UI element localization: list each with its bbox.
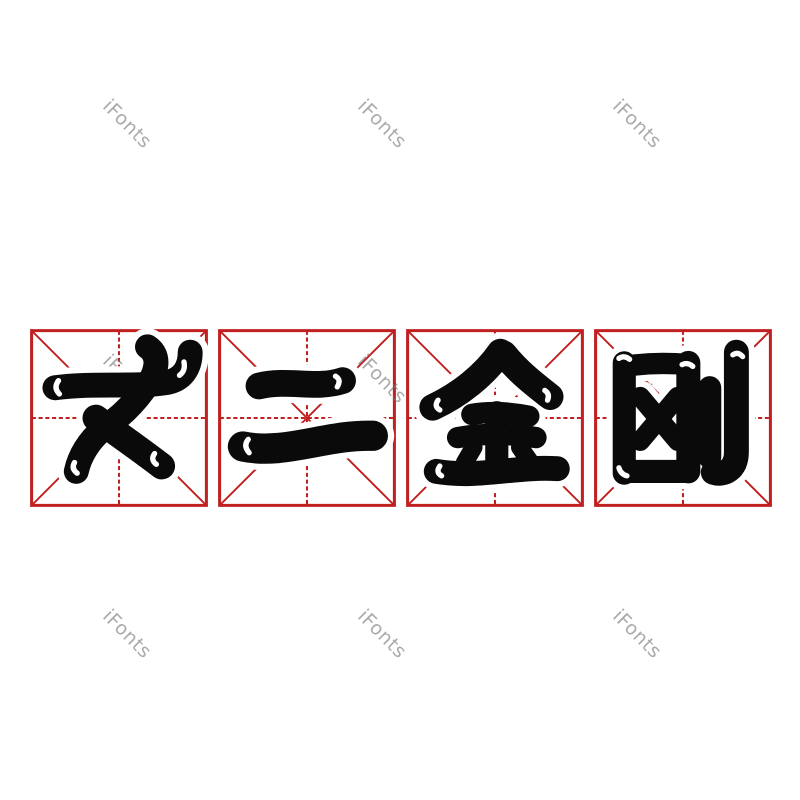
character-glyph: [394, 317, 596, 519]
watermark-text: iFonts: [353, 95, 411, 153]
mizige-box: 丈: [30, 329, 208, 507]
character-glyph: [582, 317, 784, 519]
canvas: 丈二金刚 iFontsiFontsiFontsiFontsiFontsiFont…: [0, 0, 800, 800]
mizige-box: 金: [406, 329, 584, 507]
character-glyph: [206, 317, 408, 519]
watermark-text: iFonts: [98, 605, 156, 663]
phrase-text: 丈二金刚: [0, 0, 1, 1]
mizige-box: 二: [218, 329, 396, 507]
character-glyph: [18, 317, 220, 519]
watermark-text: iFonts: [608, 605, 666, 663]
watermark-text: iFonts: [608, 95, 666, 153]
watermark-text: iFonts: [98, 95, 156, 153]
mizige-box: 刚: [594, 329, 772, 507]
watermark-text: iFonts: [353, 605, 411, 663]
